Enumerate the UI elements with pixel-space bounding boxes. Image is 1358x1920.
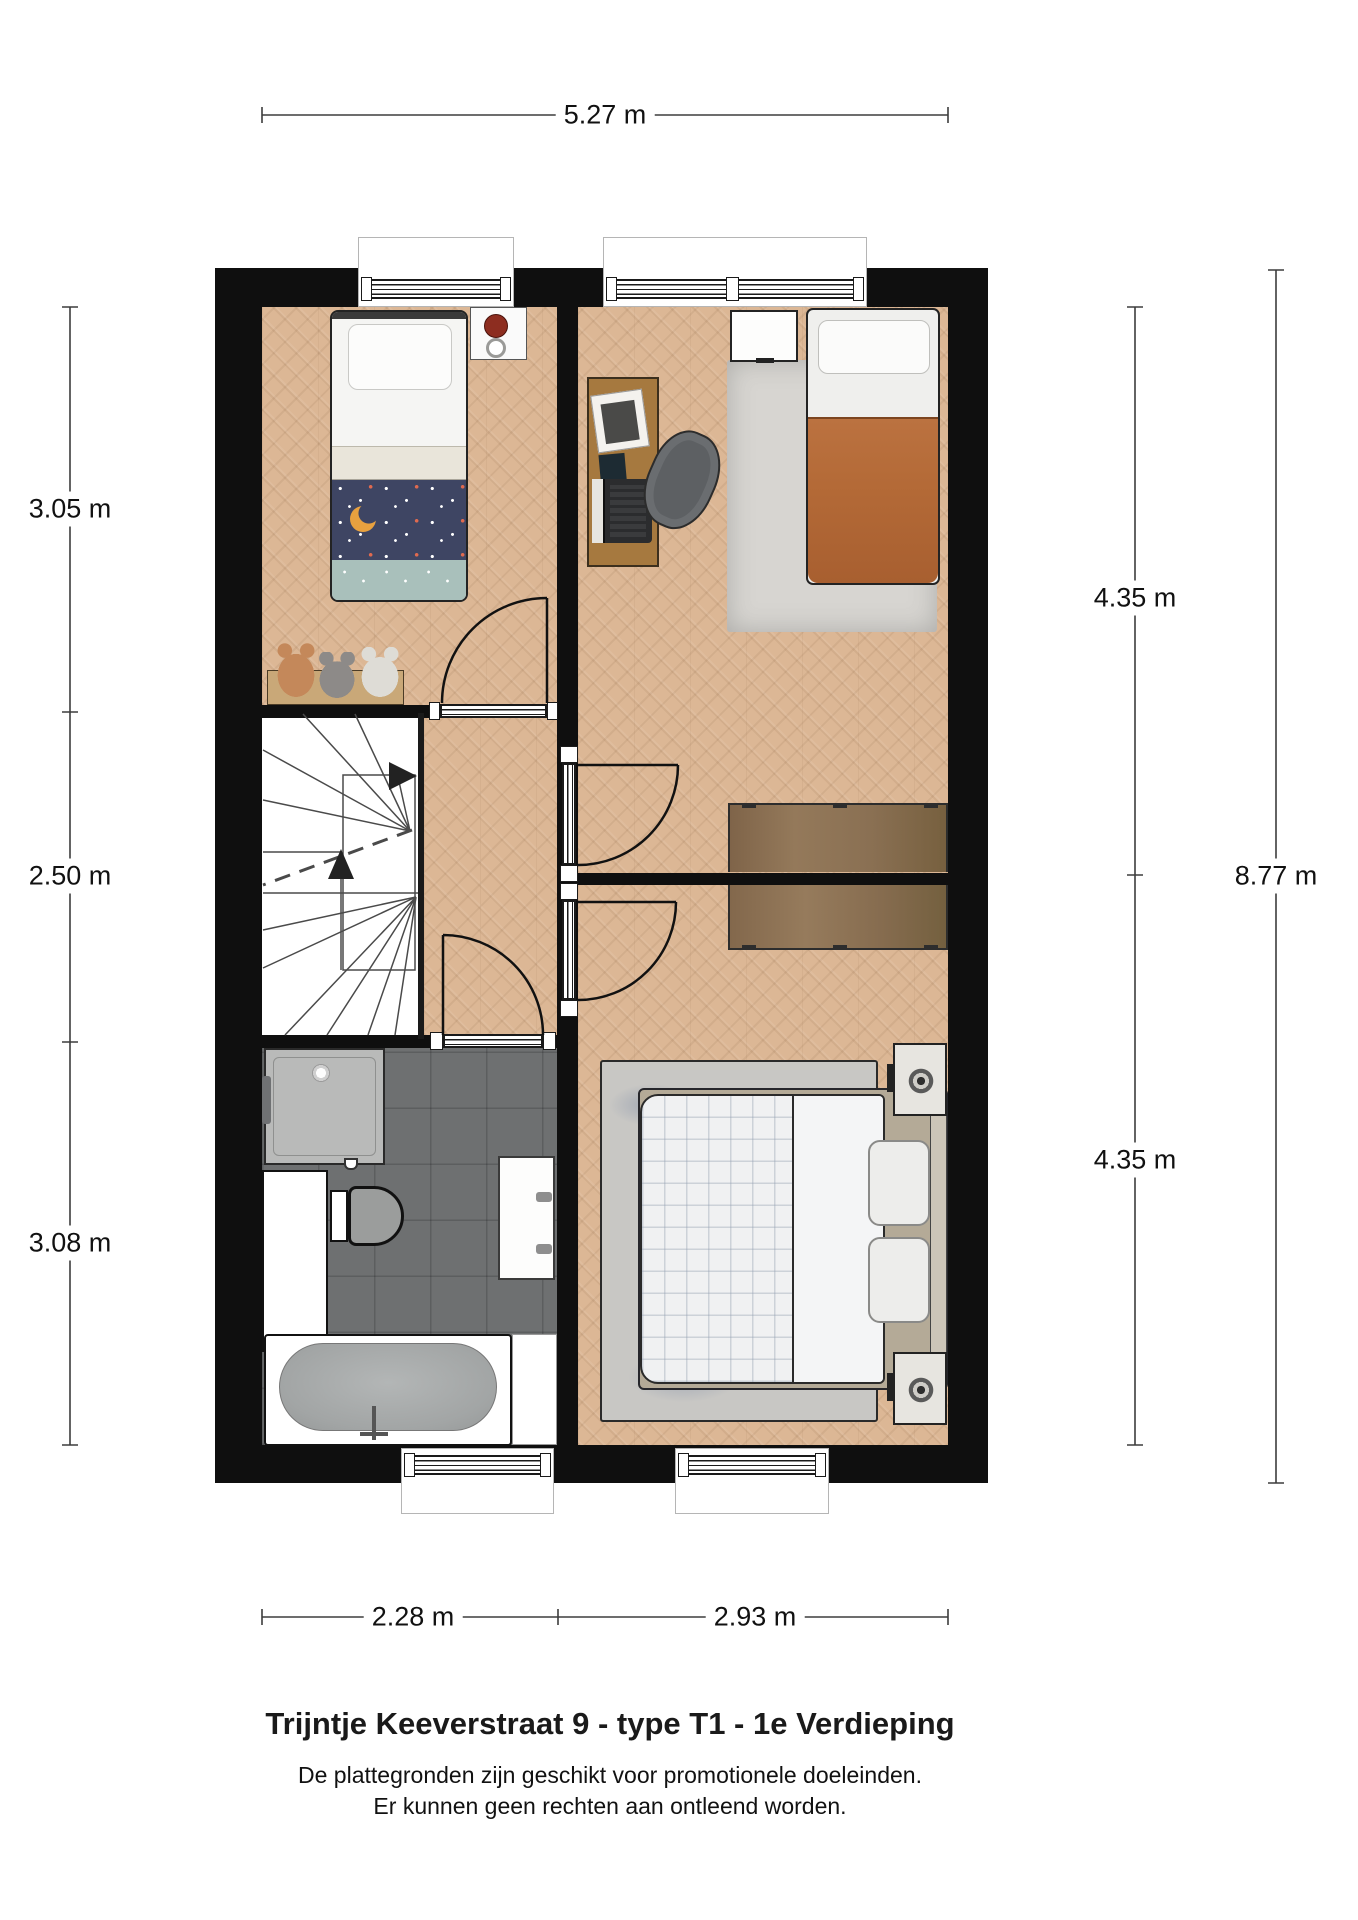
nightstand-handle bbox=[887, 1064, 893, 1092]
bedroom2-door-leaf bbox=[562, 763, 576, 865]
bedroom3-nightstand-top bbox=[893, 1043, 947, 1116]
bedroom1-window-jamb bbox=[361, 277, 372, 301]
bedroom1-door-leaf bbox=[440, 704, 547, 718]
dim-label-left-stairs: 2.50 m bbox=[21, 859, 120, 894]
bathtub bbox=[264, 1334, 512, 1446]
bedroom1-window-jamb bbox=[500, 277, 511, 301]
bedroom2-door-jamb bbox=[560, 865, 578, 882]
bedroom3-door-jamb bbox=[560, 883, 578, 900]
dim-label-left-bedroom1: 3.05 m bbox=[21, 492, 120, 527]
bedroom2-window-jamb bbox=[606, 277, 617, 301]
shower bbox=[264, 1048, 385, 1165]
moon-icon bbox=[350, 506, 376, 532]
plush-toy-gray bbox=[318, 652, 356, 698]
bedroom3-window-jamb bbox=[678, 1453, 689, 1477]
bedroom3-nightstand-bottom bbox=[893, 1352, 947, 1425]
disclaimer-line-1: De plattegronden zijn geschikt voor prom… bbox=[298, 1762, 922, 1789]
bedroom3-door-jamb bbox=[560, 1000, 578, 1017]
bedroom2-window-right bbox=[735, 279, 860, 299]
bathroom-cabinet bbox=[262, 1170, 328, 1352]
bathroom-window-jamb bbox=[540, 1453, 551, 1477]
dim-label-left-bathroom: 3.08 m bbox=[21, 1226, 120, 1261]
bed-duvet-rust bbox=[808, 417, 938, 583]
bedroom3-window bbox=[682, 1455, 822, 1475]
wardrobe-handle bbox=[742, 945, 756, 950]
bedroom1-door-jamb bbox=[547, 702, 558, 720]
bed-pillow bbox=[868, 1237, 930, 1323]
bed-headboard bbox=[332, 312, 466, 319]
wardrobe-handle bbox=[742, 803, 756, 808]
faucet-icon bbox=[536, 1192, 552, 1202]
bedroom1-window bbox=[365, 279, 507, 299]
plan-title: Trijntje Keeverstraat 9 - type T1 - 1e V… bbox=[265, 1706, 954, 1742]
hallway-floor bbox=[424, 718, 557, 1035]
magazine bbox=[590, 389, 650, 454]
wall-shelf bbox=[470, 307, 527, 360]
stair-hall-wall bbox=[418, 713, 424, 1039]
stairwell-floor bbox=[262, 718, 418, 1035]
bed-headboard bbox=[930, 1096, 947, 1384]
bathtub-basin bbox=[279, 1343, 497, 1431]
bedroom2-door-jamb bbox=[560, 746, 578, 763]
bedroom2-window-left bbox=[610, 279, 731, 299]
faucet-icon bbox=[536, 1244, 552, 1254]
nightstand-knob bbox=[908, 1377, 934, 1403]
bedroom2-window-mullion bbox=[726, 277, 739, 301]
dim-label-bottom-bedroom3: 2.93 m bbox=[706, 1600, 805, 1635]
dim-label-bottom-bathroom: 2.28 m bbox=[364, 1600, 463, 1635]
bathroom-door-leaf bbox=[443, 1034, 543, 1048]
sink-vanity bbox=[498, 1156, 555, 1280]
nightstand-knob bbox=[908, 1068, 934, 1094]
wardrobe-handle bbox=[924, 803, 938, 808]
magazine-photo bbox=[601, 400, 640, 444]
shower-door-handle bbox=[344, 1158, 358, 1170]
dim-label-top-width: 5.27 m bbox=[556, 98, 655, 133]
toilet-cistern bbox=[330, 1190, 348, 1242]
plush-toy-white bbox=[360, 647, 400, 697]
bathtub-faucet-handles-icon bbox=[360, 1432, 388, 1436]
nightstand-handle bbox=[887, 1373, 893, 1401]
bathroom-column bbox=[512, 1334, 557, 1445]
bathroom-door-jamb bbox=[430, 1032, 443, 1050]
bed-pillow bbox=[868, 1140, 930, 1226]
shower-fixture-icon bbox=[262, 1076, 271, 1124]
wardrobe-handle bbox=[924, 945, 938, 950]
nightstand-handle bbox=[756, 358, 774, 363]
round-speaker-icon bbox=[486, 338, 506, 358]
bathroom-door-jamb bbox=[543, 1032, 556, 1050]
dim-line-right-rooms bbox=[1127, 307, 1143, 1445]
bedroom2-nightstand bbox=[730, 310, 798, 362]
single-bed-child bbox=[330, 310, 468, 602]
wardrobe-bedroom3 bbox=[728, 885, 948, 950]
dim-label-right-bedroom3: 4.35 m bbox=[1086, 1143, 1185, 1178]
double-bed-sheet-fold bbox=[792, 1096, 883, 1382]
bedroom3-door-leaf bbox=[562, 900, 576, 1000]
dim-label-right-total: 8.77 m bbox=[1227, 859, 1326, 894]
laptop-keyboard bbox=[610, 485, 646, 537]
bedroom1-door-jamb bbox=[429, 702, 440, 720]
floor-plan-page: 5.27 m 3.05 m 2.50 m 3.08 m 4.35 m 4.35 … bbox=[0, 0, 1358, 1920]
bedroom3-window-jamb bbox=[815, 1453, 826, 1477]
bedroom2-window-jamb bbox=[853, 277, 864, 301]
bed-quilt-band bbox=[332, 446, 466, 480]
wardrobe-handle bbox=[833, 945, 847, 950]
shower-drain bbox=[312, 1064, 330, 1082]
bed-pillow bbox=[818, 320, 930, 374]
disclaimer-line-2: Er kunnen geen rechten aan ontleend word… bbox=[373, 1793, 846, 1820]
bathroom-window bbox=[408, 1455, 547, 1475]
plush-toy-orange bbox=[276, 643, 316, 697]
bed-pillow bbox=[348, 324, 452, 390]
alarm-clock-icon bbox=[484, 314, 508, 338]
wardrobe-bedroom2 bbox=[728, 803, 948, 872]
dim-label-right-bedroom2: 4.35 m bbox=[1086, 581, 1185, 616]
bed-duvet-teal bbox=[332, 560, 466, 602]
bed-duvet-starry bbox=[332, 480, 466, 560]
laptop-screen bbox=[592, 479, 605, 543]
single-bed-teen bbox=[806, 308, 940, 585]
wardrobe-handle bbox=[833, 803, 847, 808]
bathroom-window-jamb bbox=[404, 1453, 415, 1477]
